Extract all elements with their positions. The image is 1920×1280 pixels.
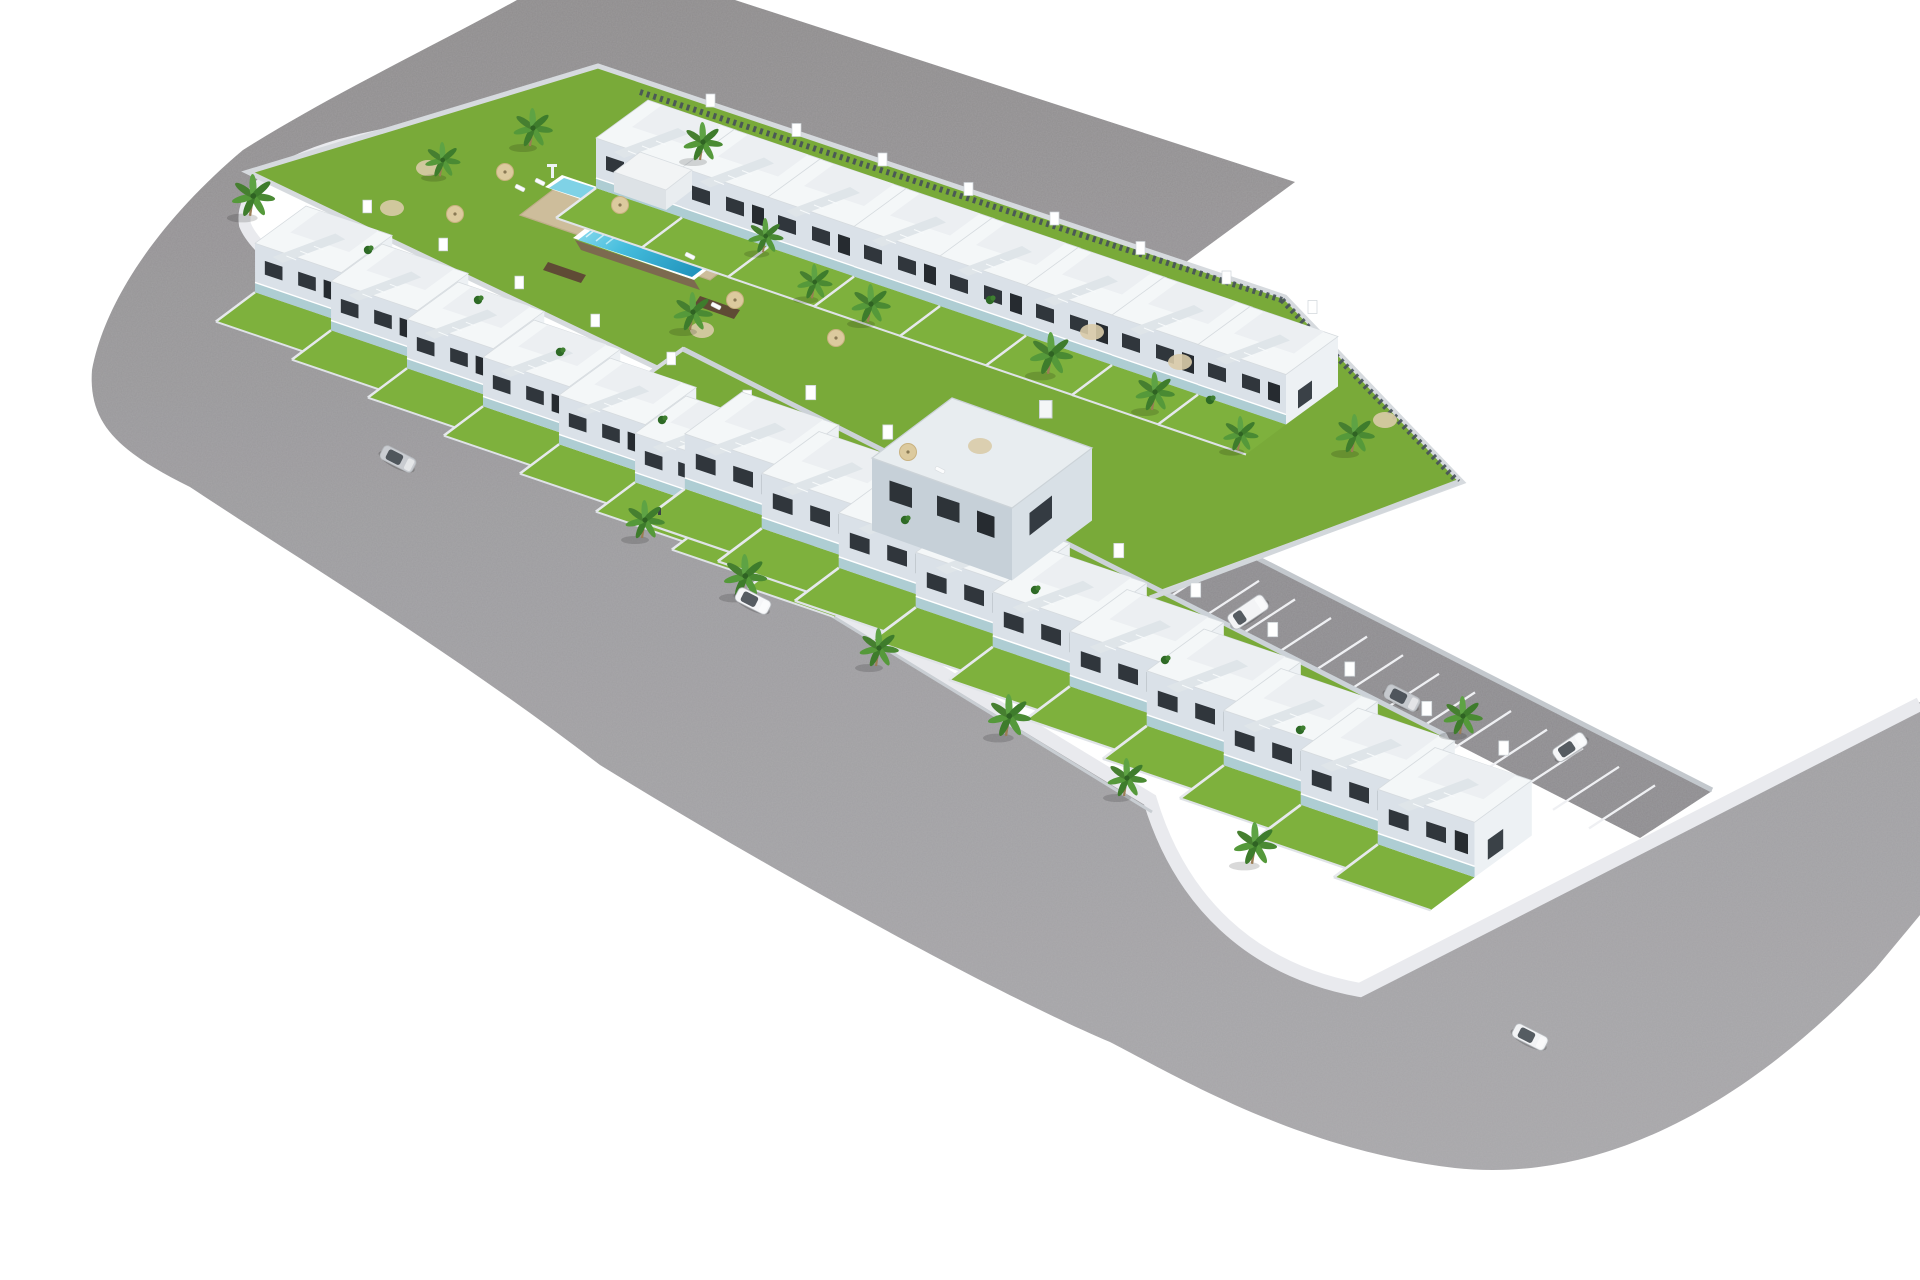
pool-slide	[551, 166, 554, 178]
gravel-patch	[1080, 324, 1104, 340]
parasol	[497, 164, 514, 181]
parasol	[900, 444, 917, 461]
site-plan-svg	[0, 0, 1920, 1280]
pool-slide	[547, 164, 557, 167]
site-render-stage	[0, 0, 1920, 1280]
gravel-patch	[380, 200, 404, 216]
parasol	[612, 197, 629, 214]
gravel-patch	[1373, 412, 1397, 428]
parasol	[727, 292, 744, 309]
gravel-patch	[1168, 354, 1192, 370]
parasol	[828, 330, 845, 347]
gravel-patch	[968, 438, 992, 454]
parasol	[447, 206, 464, 223]
